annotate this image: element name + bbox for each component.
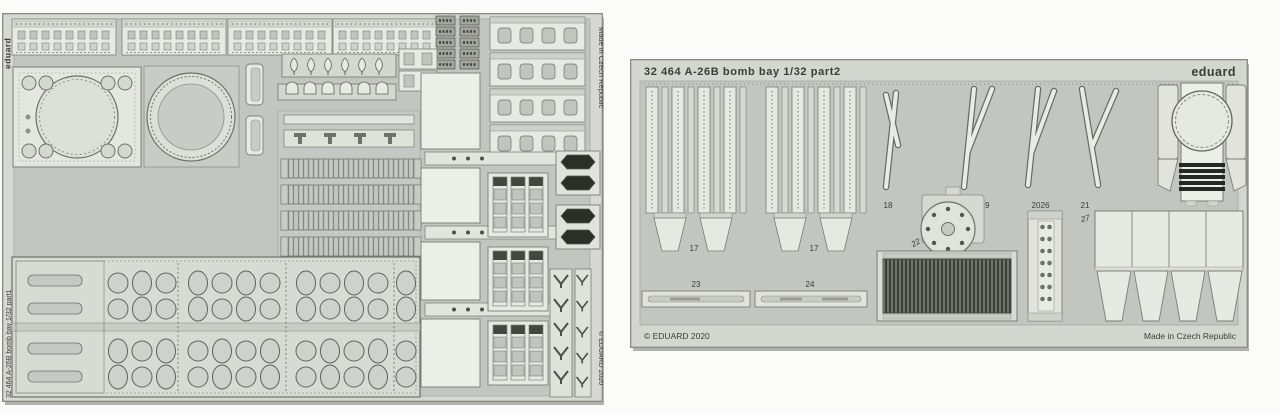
sheet-title: 32 464 A-26B bomb bay 1/32 part2 (644, 66, 841, 78)
pe-sheet-part1: eduard 32 464 A-26B bomb bay 1/32 part1 … (2, 13, 603, 402)
bulkhead-ring-part (144, 66, 239, 167)
chevron-bracket-parts (550, 269, 591, 397)
made-in-text: Made in Czech Republic (1144, 331, 1237, 341)
ladder-strip-parts (12, 19, 437, 55)
part-number-21: 21 (1081, 201, 1090, 210)
product-photo-pe-sheets: eduard 32 464 A-26B bomb bay 1/32 part1 … (0, 0, 1280, 413)
pe-sheet-part2-graphic: 32 464 A-26B bomb bay 1/32 part2 eduard … (630, 59, 1248, 348)
rivet-column-part (1028, 211, 1062, 321)
pe-sheet-part2: 32 464 A-26B bomb bay 1/32 part2 eduard … (630, 59, 1248, 348)
copyright-text: © EDUARD 2020 (644, 331, 710, 341)
arch-strip-part (278, 82, 396, 100)
copyright-text-vertical: © EDUARD 2020 (597, 331, 603, 385)
part-number-24: 24 (806, 280, 815, 289)
teardrop-strip-part (282, 54, 396, 77)
louvered-grille-part (877, 251, 1017, 321)
brand-logo: eduard (1191, 65, 1236, 79)
part-number-17b: 17 (810, 244, 819, 253)
bomb-bay-wall-panel (12, 257, 420, 397)
part-number-17a: 17 (690, 244, 699, 253)
part-number-18: 18 (884, 201, 893, 210)
part-number-23: 23 (692, 280, 701, 289)
brand-logo-vertical: eduard (3, 38, 13, 69)
ribbed-strip-parts (278, 111, 421, 257)
bulkhead-panel-part (13, 67, 141, 167)
pe-sheet-part1-graphic: eduard 32 464 A-26B bomb bay 1/32 part1 … (2, 13, 603, 402)
part-number-26: 26 (1041, 201, 1050, 210)
made-in-text-vertical: Made in Czech Republic (597, 27, 603, 109)
grid-panel-parts (488, 173, 548, 385)
circle-striped-panel-part (1158, 83, 1246, 206)
